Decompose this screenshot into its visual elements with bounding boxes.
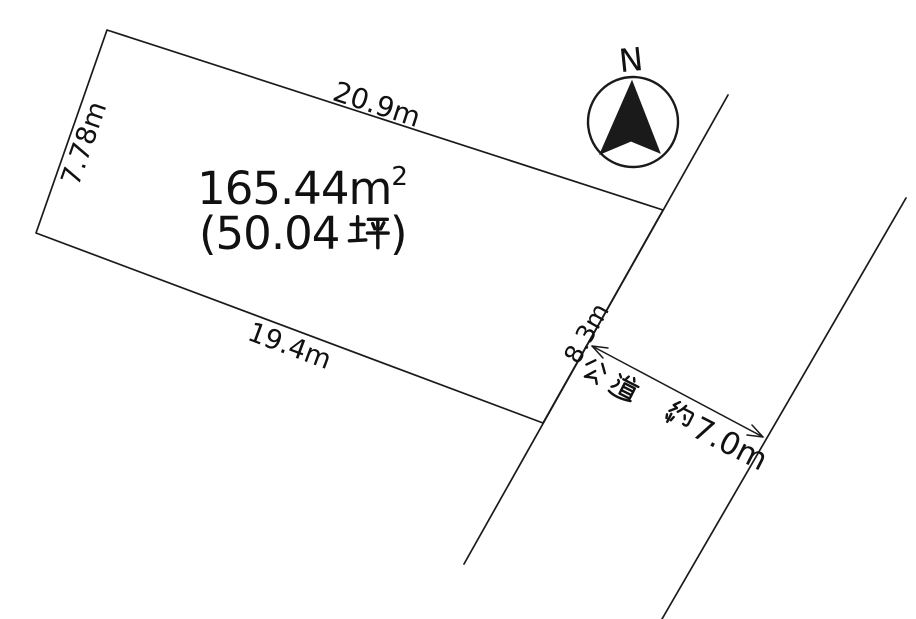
dim-bottom-label: 19.4m [244, 317, 336, 376]
north-compass: N [588, 40, 678, 167]
road-edge-east [662, 198, 906, 619]
area-sqm-superscript: 2 [391, 162, 407, 192]
land-plot-diagram: N 20.9m 7.78m 19.4m 8.3m 165.44m2 (50.04… [0, 0, 916, 619]
dim-top-label: 20.9m [329, 75, 424, 134]
north-label: N [617, 40, 645, 80]
road-width-label: 7.0m [686, 410, 773, 478]
road-width-arrow [592, 346, 763, 437]
north-needle-icon [600, 81, 660, 154]
arrow-line [592, 346, 763, 437]
area-tsubo-open: (50.04 [199, 207, 339, 260]
dou-kanji [608, 370, 641, 403]
dim-right-label: 8.3m [558, 298, 615, 368]
tsubo-kanji [349, 217, 388, 248]
yaku-kanji [664, 399, 695, 430]
road-label: 7.0m [576, 354, 774, 479]
dim-left-label: 7.78m [56, 98, 114, 190]
area-tsubo-close: ) [390, 207, 407, 260]
road-name-kanji [580, 356, 641, 403]
site-plan-svg: N 20.9m 7.78m 19.4m 8.3m 165.44m2 (50.04… [0, 0, 916, 619]
